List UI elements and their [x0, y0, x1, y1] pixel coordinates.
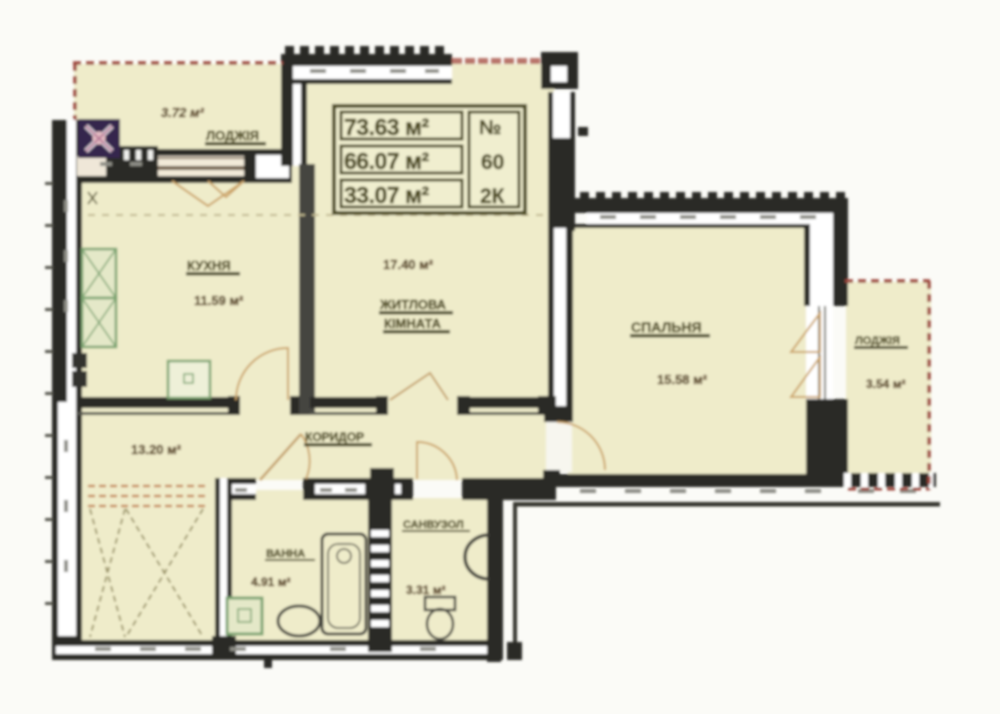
svg-text:3.54 м²: 3.54 м² [866, 377, 906, 391]
svg-text:3.72 м²: 3.72 м² [161, 105, 205, 120]
svg-text:КІМНАТА: КІМНАТА [384, 316, 442, 331]
svg-text:33.07 м²: 33.07 м² [344, 182, 429, 208]
svg-text:73.63 м²: 73.63 м² [344, 114, 429, 140]
svg-text:СПАЛЬНЯ: СПАЛЬНЯ [631, 319, 702, 335]
svg-text:11.59 м²: 11.59 м² [194, 293, 244, 308]
svg-text:15.58 м²: 15.58 м² [657, 372, 708, 387]
svg-text:13.20 м²: 13.20 м² [131, 442, 182, 457]
svg-text:САНВУЗОЛ: САНВУЗОЛ [403, 519, 464, 531]
svg-text:3.31 м²: 3.31 м² [406, 583, 446, 597]
svg-text:4.91 м²: 4.91 м² [251, 575, 291, 589]
svg-text:КУХНЯ: КУХНЯ [187, 258, 231, 273]
svg-text:66.07 м²: 66.07 м² [344, 148, 429, 174]
svg-text:КОРИДОР: КОРИДОР [305, 430, 364, 444]
svg-text:17.40 м²: 17.40 м² [383, 257, 434, 272]
svg-text:№: № [479, 117, 501, 139]
svg-text:ЛОДЖІЯ: ЛОДЖІЯ [206, 128, 259, 143]
svg-text:2К: 2К [480, 185, 505, 208]
svg-text:ЖИТЛОВА: ЖИТЛОВА [379, 297, 447, 312]
svg-text:60: 60 [481, 151, 504, 174]
svg-text:ЛОДЖІЯ: ЛОДЖІЯ [855, 335, 900, 347]
svg-text:ВАННА: ВАННА [266, 548, 305, 560]
